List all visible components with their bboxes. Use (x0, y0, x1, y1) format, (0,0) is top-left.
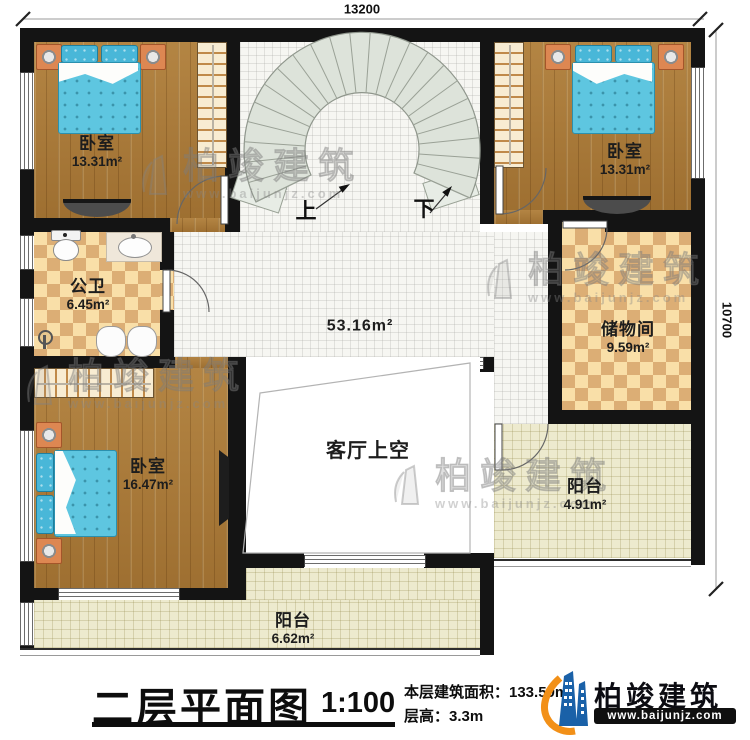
sink-counter (106, 232, 162, 262)
room-area: 6.45m² (67, 297, 110, 313)
nightstand (36, 422, 62, 448)
bed-top-left (58, 43, 140, 133)
pillow (61, 45, 98, 63)
floor-doorway-top-right (494, 210, 543, 224)
logo-tower (576, 681, 588, 726)
pillow (36, 453, 54, 492)
room-name: 卧室 (123, 457, 173, 477)
room-name: 储物间 (601, 320, 655, 340)
wall (20, 28, 705, 42)
floor-drain (38, 330, 53, 345)
nightstand (545, 44, 571, 70)
company-website: www.baijunjz.com (594, 708, 736, 724)
wall (548, 224, 562, 424)
room-label-bathroom: 公卫 6.45m² (67, 277, 110, 313)
room-area: 16.47m² (123, 477, 173, 493)
tv-wall-mounted (219, 450, 229, 526)
room-name: 公卫 (67, 277, 110, 297)
bed-top-right (572, 43, 654, 133)
wall (160, 232, 174, 270)
room-label-hall-area: 53.16m² (327, 318, 394, 337)
pillow (575, 45, 612, 63)
room-name: 阳台 (564, 477, 607, 497)
window (20, 298, 34, 347)
floor-plan: 柏竣建筑 www.baijunjz.com 柏竣建筑 www.baijunjz.… (0, 0, 750, 740)
wall (605, 222, 691, 232)
wall (20, 356, 175, 368)
window (20, 430, 34, 562)
toilet (48, 230, 82, 260)
wardrobe-top-right (494, 42, 524, 168)
window (20, 72, 34, 170)
room-label-balcony-bottom: 阳台 6.62m² (272, 611, 315, 647)
nightstand (36, 538, 62, 564)
sink-basin (118, 237, 152, 258)
wardrobe-top-left (197, 42, 227, 168)
room-label-bedroom-top-right: 卧室 13.31m² (600, 142, 650, 178)
room-area: 4.91m² (564, 497, 607, 513)
pillow (36, 495, 54, 534)
room-area: 13.31m² (600, 162, 650, 178)
room-area: 6.62m² (272, 631, 315, 647)
twin-basins (96, 326, 156, 356)
room-label-storage: 储物间 9.59m² (601, 320, 655, 356)
nightstand (658, 44, 684, 70)
window (20, 602, 34, 646)
room-label-bedroom-top-left: 卧室 13.31m² (72, 134, 122, 170)
floor-storage-door (562, 222, 605, 232)
floor-height-note: 层高：3.3m (404, 705, 483, 726)
floor-hall (174, 232, 548, 357)
window (20, 235, 34, 270)
wall (20, 218, 170, 232)
wall (480, 553, 494, 655)
nightstand (140, 44, 166, 70)
room-name: 卧室 (600, 142, 650, 162)
company-logo-icon (538, 666, 592, 736)
wall (228, 356, 246, 602)
wall (225, 28, 240, 232)
wall (480, 28, 494, 224)
dimension-right: 10700 (720, 302, 735, 338)
room-label-living-void: 客厅上空 (326, 440, 410, 464)
room-label-bedroom-bottom-left: 卧室 16.47m² (123, 457, 173, 493)
room-area: 53.16m² (327, 318, 394, 337)
wall (246, 553, 304, 568)
window (691, 67, 705, 179)
room-area: 9.59m² (601, 340, 655, 356)
wall (160, 310, 174, 360)
stairs-up-label: 上 (296, 195, 317, 225)
balcony-railing (494, 559, 691, 567)
floor-balcony-bottom (34, 600, 480, 648)
floor-corridor (494, 232, 548, 424)
plan-scale: 1:100 (321, 687, 395, 720)
bed-bottom-left (34, 450, 116, 536)
wardrobe-bottom-left (34, 368, 154, 398)
sliding-window (304, 555, 426, 567)
room-name: 客厅上空 (326, 440, 410, 464)
room-area: 13.31m² (72, 154, 122, 170)
floor-bathroom-door (160, 270, 174, 310)
pillow (615, 45, 652, 63)
floor-doorway-bottom-left (175, 356, 228, 368)
floor-stair-hall (240, 42, 480, 232)
title-underline (92, 722, 395, 727)
room-name: 卧室 (72, 134, 122, 154)
pillow (101, 45, 138, 63)
balcony-railing (20, 648, 480, 656)
room-label-balcony-right: 阳台 4.91m² (564, 477, 607, 513)
dimension-top: 13200 (344, 2, 380, 17)
floor-doorway-top-left (170, 218, 225, 232)
floor-balcony-bottom-upper (246, 568, 480, 600)
logo-tower (559, 671, 577, 726)
wall (545, 410, 691, 424)
room-name: 阳台 (272, 611, 315, 631)
stairs-down-label: 下 (414, 193, 435, 223)
